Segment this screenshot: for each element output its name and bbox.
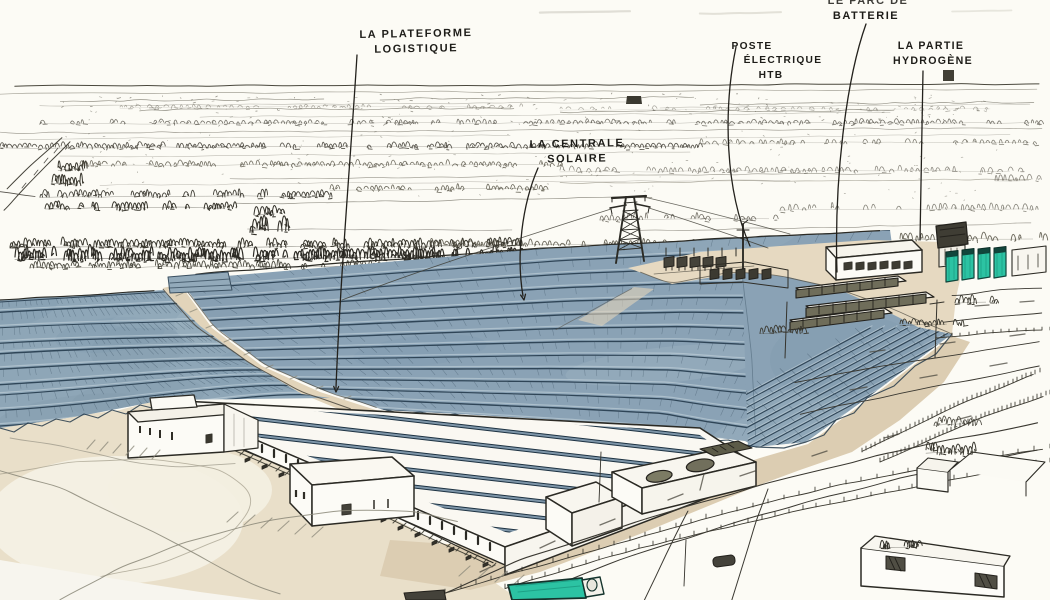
- svg-text:HYDROGÈNE: HYDROGÈNE: [893, 54, 973, 67]
- svg-text:LA PARTIE: LA PARTIE: [898, 40, 964, 52]
- svg-text:LA PLATEFORME: LA PLATEFORME: [359, 27, 472, 41]
- svg-text:LA CENTRALE: LA CENTRALE: [529, 137, 624, 151]
- svg-text:ÉLECTRIQUE: ÉLECTRIQUE: [744, 53, 823, 66]
- svg-text:LOGISTIQUE: LOGISTIQUE: [374, 42, 458, 55]
- svg-text:LE PARC DE: LE PARC DE: [828, 0, 909, 7]
- svg-text:SOLAIRE: SOLAIRE: [547, 152, 607, 165]
- svg-text:BATTERIE: BATTERIE: [833, 10, 899, 22]
- svg-text:POSTE: POSTE: [731, 41, 772, 52]
- svg-text:HTB: HTB: [759, 70, 784, 81]
